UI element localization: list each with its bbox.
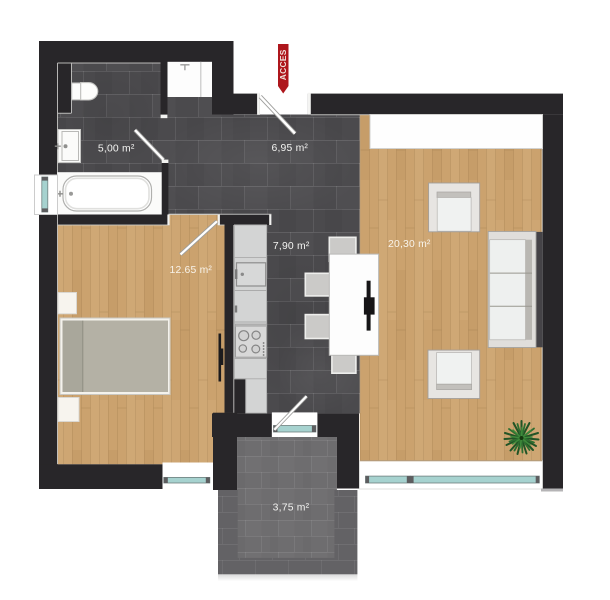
svg-text:5,00 m²: 5,00 m² [98, 144, 135, 155]
svg-text:12.65 m²: 12.65 m² [169, 265, 212, 276]
svg-text:7,90 m²: 7,90 m² [273, 241, 310, 252]
svg-text:ACCES: ACCES [278, 49, 288, 80]
svg-text:20,30 m²: 20,30 m² [388, 239, 431, 250]
svg-text:6,95 m²: 6,95 m² [271, 143, 308, 154]
svg-text:3,75 m²: 3,75 m² [273, 503, 310, 514]
